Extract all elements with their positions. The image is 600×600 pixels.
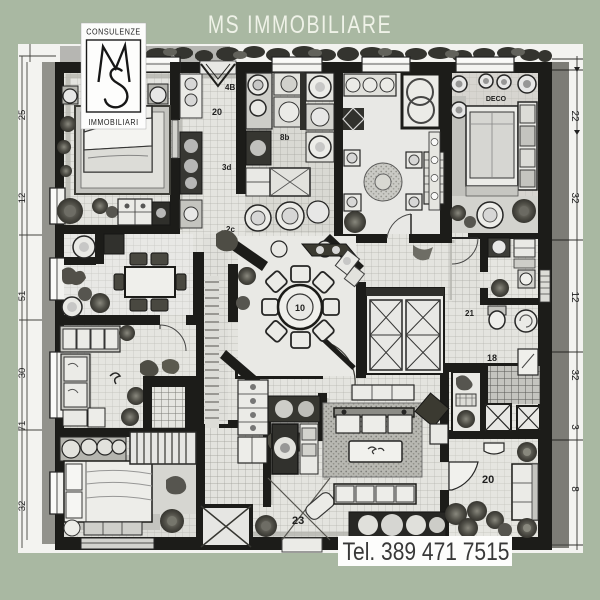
svg-text:32: 32 <box>569 192 580 204</box>
svg-text:32: 32 <box>569 369 580 381</box>
svg-text:CONSULENZE: CONSULENZE <box>86 27 141 36</box>
svg-text:32: 32 <box>17 501 28 512</box>
svg-text:30: 30 <box>17 368 28 379</box>
svg-text:12: 12 <box>17 193 28 204</box>
svg-text:Tel. 389 471 7515: Tel. 389 471 7515 <box>343 537 510 565</box>
svg-text:12: 12 <box>569 291 580 303</box>
svg-text:8: 8 <box>569 486 580 492</box>
svg-text:IMMOBILIARI: IMMOBILIARI <box>88 118 138 127</box>
svg-text:71: 71 <box>17 421 28 432</box>
svg-text:MS IMMOBILIARE: MS IMMOBILIARE <box>208 11 392 39</box>
svg-text:25: 25 <box>17 110 28 121</box>
svg-text:22: 22 <box>569 110 580 122</box>
svg-text:3: 3 <box>569 424 580 430</box>
svg-text:51: 51 <box>17 291 28 302</box>
